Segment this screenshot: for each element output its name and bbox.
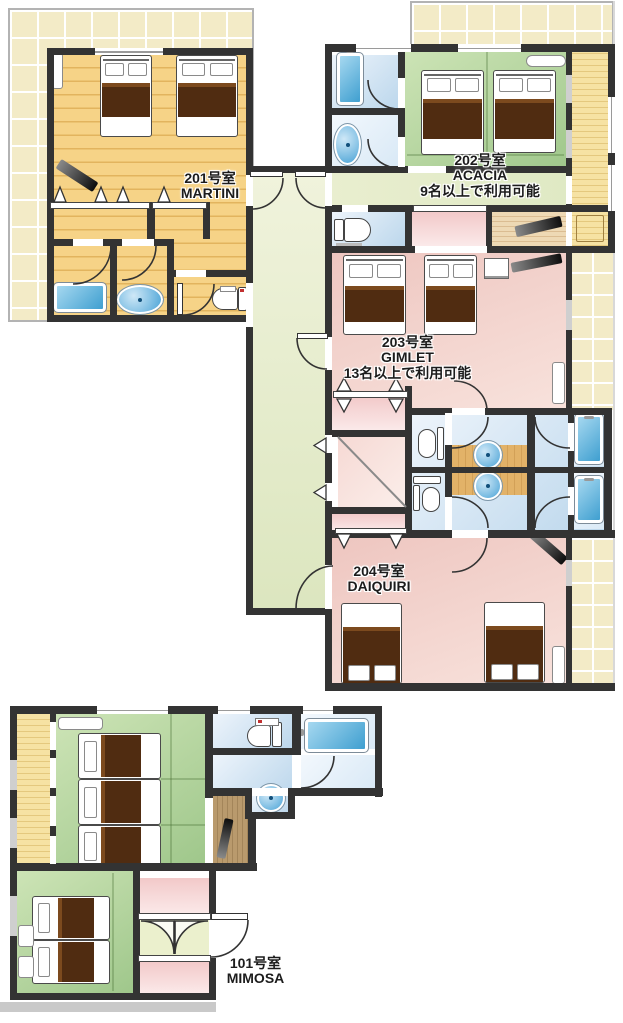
door-swing [454,381,487,411]
door-swing [296,566,333,609]
pillow [210,63,233,76]
pillow [491,664,513,680]
room-label-204: 204号室 DAIQUIRI [331,564,427,595]
sink [117,285,163,314]
window [458,44,521,52]
blanket [423,99,482,139]
room-name: GIMLET [330,350,485,365]
headboard [424,74,481,76]
door-gap [176,270,206,277]
wall [332,430,412,437]
toilet [416,426,444,462]
toilet [413,476,442,512]
bed [32,940,110,984]
folding-door [388,398,404,413]
pillow [84,741,97,772]
folding-door [313,437,327,454]
toilet-bowl [418,429,436,458]
wall [375,706,382,797]
door-swing [297,338,327,369]
pillow [105,63,124,76]
blanket [58,898,94,938]
blanket [101,827,141,867]
closet-door-track [138,913,211,920]
blanket [345,286,404,322]
door-gap [292,755,301,788]
door-swing [122,246,156,280]
door-gap [445,497,452,530]
sink [474,472,502,500]
window [246,283,253,327]
door-swing [301,756,334,788]
pillow [429,264,449,278]
bed [421,70,484,155]
wall [213,748,300,755]
pillow [427,78,451,92]
toilet-bowl [344,218,371,242]
blanket [101,781,141,823]
wall [246,608,332,615]
room-101-washroom [213,755,298,789]
wall [133,871,140,993]
blanket [102,83,150,117]
window [50,796,56,826]
window [566,560,572,586]
sink [334,124,361,165]
pillow [455,78,479,92]
window [10,760,17,790]
room-101-closet-upper [140,878,209,914]
wall [10,706,17,1000]
room-name: MARTINI [150,186,270,201]
bed [78,779,161,825]
wall [213,788,383,796]
room-202-closet [412,212,486,246]
closet-door-track [413,205,487,212]
toilet [334,216,372,244]
balcony-door [552,362,565,404]
floor-plan: 201号室 MARTINI 202号室 ACACIA 9名以上で利用可能 203… [0,0,623,1023]
room-capacity-note: 9名以上で利用可能 [385,184,575,199]
door-swing [73,246,111,284]
bed [32,896,110,940]
folding-door [116,186,130,203]
bathtub [575,414,603,464]
pillow [38,947,50,977]
drain [486,453,490,457]
wall [110,246,117,315]
bathtub [575,476,603,523]
wall [405,408,612,415]
window [356,44,411,52]
bed [176,55,238,137]
air-conditioner [58,717,103,730]
bathtub [337,53,363,105]
window [566,300,572,330]
side-table [18,956,34,978]
drain [138,298,142,302]
door-swing [296,178,326,208]
wall [604,408,612,538]
room-label-101: 101号室 MIMOSA [213,956,298,987]
pillow [453,264,473,278]
balcony-room-203 [570,250,614,410]
window [50,758,56,788]
door-swing [535,497,570,528]
toilet-lid [220,286,236,292]
window [218,706,250,714]
pillow [182,63,205,76]
closet-door-track [333,391,408,398]
wall [10,993,216,1000]
bed [343,255,406,335]
door-gap [122,239,154,246]
door-gap [325,173,332,206]
stairs-diagonal [338,437,406,507]
wall [332,108,398,115]
headboard [179,59,235,61]
window [50,722,56,750]
folding-door [53,186,67,203]
bed [341,603,402,684]
door-swing [183,284,214,315]
door-gap [445,413,452,445]
room-label-201: 201号室 MARTINI [150,171,270,202]
wall [405,467,612,473]
wall [47,315,253,322]
folding-door [313,484,327,501]
corridor [253,173,325,608]
drain [269,796,273,800]
balcony-room-204 [570,538,614,690]
headboard [346,259,403,261]
door-gap [398,78,405,108]
mat-line [161,778,205,780]
wall [246,48,253,615]
mat-line [170,714,172,863]
pillow [38,903,50,933]
side-table [18,925,34,947]
closet-door-track [138,955,211,962]
headboard [496,74,553,76]
blanket [426,286,475,322]
mat-line [161,824,205,826]
door-swing [452,417,488,448]
blanket [178,83,236,117]
door-swing [535,417,570,448]
door-gap [252,788,288,796]
wall [527,413,535,467]
wall [332,507,412,514]
door-gap [452,530,488,538]
wall [10,863,257,871]
wall [527,473,535,530]
headboard [427,259,474,261]
wall [47,48,54,322]
folding-door [388,533,404,549]
folding-door [94,186,108,203]
pillow [374,665,396,681]
faucet [584,478,594,481]
pillow [128,63,147,76]
window [566,75,572,103]
room-label-203: 203号室 GIMLET 13名以上で利用可能 [330,335,485,381]
toilet-tank [413,476,441,484]
wall [248,812,256,868]
door-leaf [295,171,326,177]
ground-edge-bar [0,1002,216,1012]
pillow [348,665,370,681]
door-swing [452,538,487,572]
door-swing [452,497,488,528]
entry-double-door [141,921,174,954]
room-name: ACACIA [385,168,575,183]
window [608,165,615,211]
bathtub [54,283,106,312]
window [10,818,17,848]
toilet [212,286,248,312]
closet-door-track [152,202,207,209]
blanket [58,942,94,982]
room-capacity-note: 13名以上で利用可能 [330,366,485,381]
wall [205,714,213,798]
room-label-202: 202号室 ACACIA 9名以上で利用可能 [385,153,575,199]
bed [78,733,161,779]
toilet-tank [334,219,344,241]
room-name: MIMOSA [213,971,298,986]
blanket [495,99,554,139]
balcony-door [552,646,565,684]
pillow [349,264,373,278]
drain [346,143,350,147]
wall [325,683,615,691]
wall [167,246,174,315]
pillow [377,264,401,278]
toilet [247,718,285,748]
room-101-engawa [17,714,50,864]
window [97,706,168,714]
toilet-tank [437,427,444,460]
window [50,836,56,864]
toilet-control [240,289,244,292]
folding-door [336,398,352,413]
bed [424,255,477,335]
toilet-bowl [422,487,440,512]
pillow [499,78,523,92]
bed [493,70,556,153]
pillow [527,78,551,92]
pillow [517,664,539,680]
toilet-bowl [247,725,271,747]
pillow [84,832,97,861]
bathtub [305,719,368,752]
desk [484,258,509,279]
mat-line [112,873,114,991]
door-gap [73,239,103,246]
blanket [101,735,141,777]
faucet [584,416,594,419]
toilet-cistern [413,485,420,511]
room-name: DAIQUIRI [331,579,427,594]
air-conditioner [526,55,566,67]
door-leaf [211,913,248,920]
door-swing [368,80,399,109]
pillow [84,787,97,818]
window [608,97,615,153]
closet-door-track [50,202,150,209]
closet-door-track [415,246,487,253]
room-101-closet-lower [140,962,209,993]
wall [47,239,174,246]
bed [484,602,545,683]
window [10,896,17,936]
drain [486,484,490,488]
bed [100,55,152,137]
folding-door [336,533,352,549]
window [95,48,163,55]
entry-double-door [175,921,208,954]
door-swing [211,920,248,957]
toilet-control [258,720,262,723]
headboard [103,59,149,61]
table [576,215,604,242]
window [303,706,333,714]
wall [566,253,572,415]
door-gap [342,205,368,212]
terrace-upper-right [410,1,614,48]
